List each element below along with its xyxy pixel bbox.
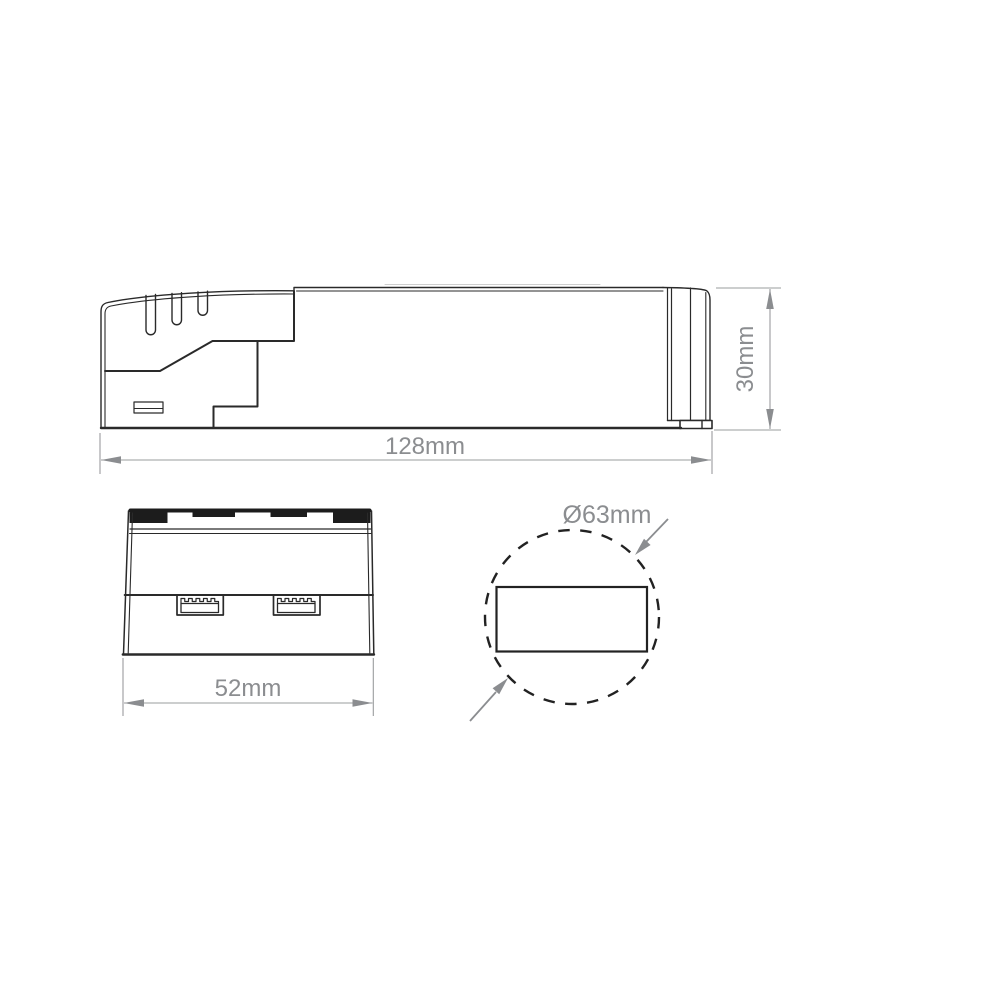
technical-drawing-canvas: 128mm 30mm	[0, 0, 1000, 1000]
terminal-block-profile	[105, 291, 294, 371]
arrowhead-left	[101, 456, 121, 464]
height-dimension-label: 30mm	[732, 326, 759, 393]
arrowhead-left	[124, 699, 144, 707]
top-rib	[193, 513, 236, 518]
terminal-cutout-left	[177, 596, 223, 616]
width-dimension-label: 52mm	[215, 675, 282, 702]
height-dimension: 30mm	[714, 288, 781, 430]
end-cap-outer	[663, 288, 710, 421]
top-edge-bar	[129, 509, 372, 513]
top-clip-left	[130, 513, 168, 524]
width-dimension: 52mm	[123, 658, 373, 716]
terminal-cutout-right	[274, 596, 321, 616]
leader-arrow-bottom	[470, 678, 508, 721]
label-slot	[134, 402, 163, 413]
lower-step-profile	[214, 341, 258, 428]
length-dimension-label: 128mm	[385, 433, 465, 460]
terminal-teeth	[181, 599, 219, 604]
mounting-foot	[680, 421, 712, 429]
cutout-inner	[278, 604, 316, 613]
length-dimension: 128mm	[100, 431, 712, 474]
arrowhead-right	[691, 456, 711, 464]
leader-arrowhead	[493, 678, 508, 694]
top-rib	[271, 513, 308, 518]
cutout-rectangle	[497, 587, 648, 652]
front-view	[123, 509, 374, 655]
top-clip-right	[333, 513, 371, 524]
hole-diameter-label: Ø63mm	[563, 501, 652, 529]
mounting-hole-detail: Ø63mm	[470, 501, 668, 721]
terminal-teeth	[278, 599, 316, 604]
arrowhead-bottom	[766, 409, 774, 429]
wire-slot	[198, 291, 208, 315]
leader-arrowhead	[635, 539, 651, 555]
arrowhead-top	[766, 289, 774, 309]
arrowhead-right	[353, 699, 373, 707]
left-side-outer	[124, 511, 129, 654]
dimension-drawing: 128mm 30mm	[0, 0, 1000, 1000]
cutout-inner	[181, 604, 219, 613]
leader-line	[470, 692, 496, 721]
side-view	[101, 285, 712, 429]
right-side-outer	[372, 511, 374, 654]
